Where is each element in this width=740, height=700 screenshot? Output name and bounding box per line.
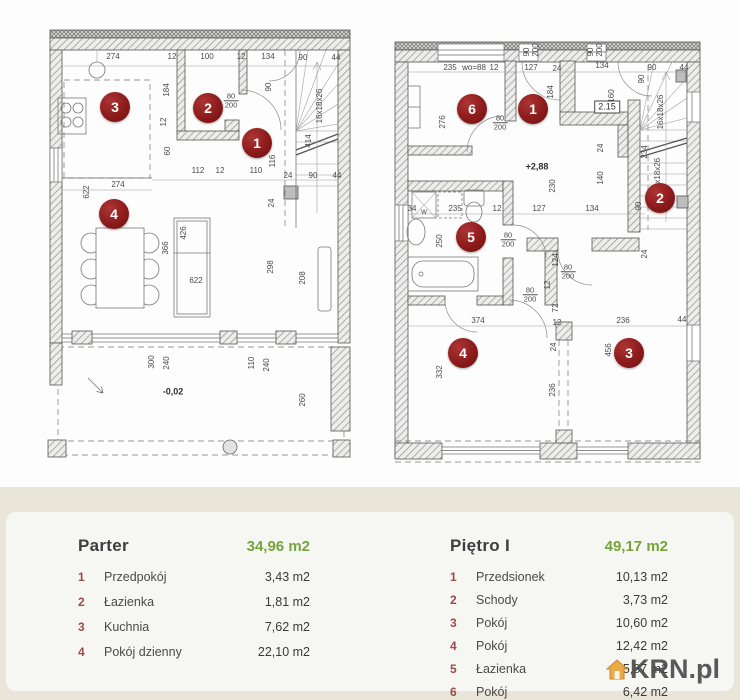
dimension-label: 366 bbox=[162, 241, 170, 254]
dimension-label: 34 bbox=[408, 205, 417, 213]
dimension-label: 24 bbox=[553, 65, 562, 73]
dimension-label: 80200 bbox=[523, 286, 538, 304]
dimension-label: 200 bbox=[532, 43, 540, 56]
room-number: 6 bbox=[450, 685, 476, 699]
legend-parter: Parter 34,96 m2 1Przedpokój3,43 m22Łazie… bbox=[78, 536, 310, 670]
room-badge-3: 3 bbox=[614, 338, 644, 368]
dimension-label: 12 bbox=[168, 53, 177, 61]
dimension-label: 90 bbox=[265, 83, 273, 92]
legend-parter-rows: 1Przedpokój3,43 m22Łazienka1,81 m23Kuchn… bbox=[78, 570, 310, 659]
room-number: 2 bbox=[450, 593, 476, 607]
legend-pietro-total: 49,17 m2 bbox=[605, 538, 668, 555]
room-badge-1: 1 bbox=[242, 128, 272, 158]
dimension-label: 24 bbox=[550, 343, 558, 352]
legend-row: 1Przedsionek10,13 m2 bbox=[450, 570, 668, 584]
dimension-label: 230 bbox=[549, 179, 557, 192]
dimension-label: 240 bbox=[263, 358, 271, 371]
house-icon bbox=[605, 658, 629, 682]
dimension-label: 60 bbox=[164, 147, 172, 156]
dimension-label: 112 bbox=[192, 167, 205, 175]
room-area: 3,43 m2 bbox=[265, 570, 310, 584]
dimension-label: 298 bbox=[267, 260, 275, 273]
dimension-label: 134 bbox=[261, 53, 274, 61]
room-number: 1 bbox=[78, 570, 104, 584]
room-name: Pokój bbox=[476, 685, 623, 699]
room-area: 10,60 m2 bbox=[616, 616, 668, 630]
legend-parter-header: Parter 34,96 m2 bbox=[78, 536, 310, 556]
room-badge-5: 5 bbox=[456, 222, 486, 252]
dimension-label: 44 bbox=[680, 64, 689, 72]
dimension-label: 90 bbox=[523, 48, 531, 57]
dimension-label: 236 bbox=[616, 317, 629, 325]
room-badge-6: 6 bbox=[457, 94, 487, 124]
legend-pietro-title: Piętro I bbox=[450, 536, 510, 556]
dimension-label: 240 bbox=[163, 356, 171, 369]
legend-row: 6Pokój6,42 m2 bbox=[450, 685, 668, 699]
dimension-label: 127 bbox=[524, 64, 537, 72]
room-badge-1: 1 bbox=[518, 94, 548, 124]
room-name: Pokój bbox=[476, 616, 616, 630]
room-name: Schody bbox=[476, 593, 623, 607]
dimension-label: 24 bbox=[268, 199, 276, 208]
dimension-label: 44 bbox=[678, 316, 687, 324]
legend-row: 4Pokój dzienny22,10 m2 bbox=[78, 645, 310, 659]
room-number: 1 bbox=[450, 570, 476, 584]
dimension-label: 12 bbox=[544, 281, 552, 290]
dimension-label: 80200 bbox=[501, 231, 516, 249]
dimension-label: 72 bbox=[552, 304, 560, 313]
legend-card: Parter 34,96 m2 1Przedpokój3,43 m22Łazie… bbox=[6, 512, 734, 691]
room-name: Pokój bbox=[476, 639, 616, 653]
dimension-label: 274 bbox=[111, 181, 124, 189]
dimension-label: 208 bbox=[299, 271, 307, 284]
dimension-label: 24 bbox=[641, 250, 649, 259]
legend-row: 3Pokój10,60 m2 bbox=[450, 616, 668, 630]
dimension-label: 140 bbox=[597, 171, 605, 184]
dimension-label: 16x18x26 bbox=[316, 89, 324, 124]
room-name: Przedsionek bbox=[476, 570, 616, 584]
level-label: +2,88 bbox=[526, 163, 549, 172]
room-number: 5 bbox=[450, 662, 476, 676]
legend-row: 3Kuchnia7,62 m2 bbox=[78, 620, 310, 634]
room-name: Łazienka bbox=[104, 595, 265, 609]
legend-parter-title: Parter bbox=[78, 536, 129, 556]
dimension-label: w bbox=[421, 208, 427, 216]
krn-watermark-text: KRN.pl bbox=[630, 654, 720, 685]
legend-pietro-header: Piętro I 49,17 m2 bbox=[450, 536, 668, 556]
dimension-label: 12 bbox=[216, 167, 225, 175]
room-badge-2: 2 bbox=[193, 93, 223, 123]
room-area: 6,42 m2 bbox=[623, 685, 668, 699]
dimension-label: 100 bbox=[200, 53, 213, 61]
dimension-label: 124 bbox=[552, 253, 560, 266]
room-name: Pokój dzienny bbox=[104, 645, 258, 659]
dimension-label: 134 bbox=[585, 205, 598, 213]
room-name: Kuchnia bbox=[104, 620, 265, 634]
room-badge-2: 2 bbox=[645, 183, 675, 213]
legend-row: 2Łazienka1,81 m2 bbox=[78, 595, 310, 609]
legend-row: 1Przedpokój3,43 m2 bbox=[78, 570, 310, 584]
dimension-label: 127 bbox=[532, 205, 545, 213]
dimension-label: 332 bbox=[436, 365, 444, 378]
level-label: -0,02 bbox=[163, 388, 184, 397]
floorplan-listing-image: .wall{fill:url(#pHatch);stroke:#555;stro… bbox=[0, 0, 740, 700]
dimension-label: 80200 bbox=[493, 114, 508, 132]
dimension-label: 134 bbox=[595, 62, 608, 70]
dimension-label: 414 bbox=[305, 134, 313, 147]
dimension-label: 12 bbox=[490, 64, 499, 72]
dimension-label: 274 bbox=[106, 53, 119, 61]
room-name: Łazienka bbox=[476, 662, 623, 676]
dimension-label: 236 bbox=[549, 383, 557, 396]
dimension-label: 24 bbox=[597, 144, 605, 153]
dimension-label: 200 bbox=[596, 43, 604, 56]
room-badge-4: 4 bbox=[448, 338, 478, 368]
dimension-label: 80200 bbox=[561, 263, 576, 281]
dimension-label: 184 bbox=[547, 85, 555, 98]
dimension-label: 235 bbox=[448, 205, 461, 213]
dimension-label: 80200 bbox=[224, 92, 239, 110]
plan-annotations-layer: 274121001213490441849080200126011641416x… bbox=[0, 0, 740, 487]
room-area: 3,73 m2 bbox=[623, 593, 668, 607]
room-badge-4: 4 bbox=[99, 199, 129, 229]
room-name: Przedpokój bbox=[104, 570, 265, 584]
legend-parter-total: 34,96 m2 bbox=[247, 538, 310, 555]
dimension-label: 90 bbox=[638, 75, 646, 84]
legend-section: Parter 34,96 m2 1Przedpokój3,43 m22Łazie… bbox=[0, 487, 740, 700]
room-number: 4 bbox=[78, 645, 104, 659]
dimension-label: 622 bbox=[83, 185, 91, 198]
dimension-label: 24 bbox=[284, 172, 293, 180]
krn-watermark: KRN.pl bbox=[605, 654, 720, 685]
dimension-label: 374 bbox=[471, 317, 484, 325]
dimension-label: 426 bbox=[180, 226, 188, 239]
room-area: 22,10 m2 bbox=[258, 645, 310, 659]
room-number: 2 bbox=[78, 595, 104, 609]
dimension-label: 90 bbox=[648, 64, 657, 72]
dimension-label: 44 bbox=[332, 54, 341, 62]
dimension-label: 12 bbox=[237, 53, 246, 61]
dimension-label: 250 bbox=[436, 234, 444, 247]
dimension-label: 622 bbox=[189, 277, 202, 285]
floorplans-section: .wall{fill:url(#pHatch);stroke:#555;stro… bbox=[0, 0, 740, 487]
dimension-label: 260 bbox=[299, 393, 307, 406]
dimension-label: 110 bbox=[250, 167, 263, 175]
room-badge-3: 3 bbox=[100, 92, 130, 122]
room-number: 4 bbox=[450, 639, 476, 653]
dimension-label: 12 bbox=[493, 205, 502, 213]
dimension-label: 184 bbox=[163, 83, 171, 96]
dimension-label: 90 bbox=[299, 54, 308, 62]
dimension-label: 12 bbox=[553, 319, 562, 327]
dimension-label: 110 bbox=[248, 357, 256, 370]
dimension-label: 276 bbox=[439, 115, 447, 128]
room-area: 10,13 m2 bbox=[616, 570, 668, 584]
room-area: 7,62 m2 bbox=[265, 620, 310, 634]
dimension-label: 456 bbox=[605, 343, 613, 356]
dimension-label: 90 bbox=[635, 202, 643, 211]
dimension-label: 300 bbox=[148, 355, 156, 368]
dimension-label: wo=88 bbox=[462, 64, 486, 72]
legend-row: 4Pokój12,42 m2 bbox=[450, 639, 668, 653]
dimension-label: 234 bbox=[641, 145, 649, 158]
room-area: 12,42 m2 bbox=[616, 639, 668, 653]
dimension-label: 16x18x26 bbox=[657, 95, 665, 130]
dimension-label: 44 bbox=[333, 172, 342, 180]
dimension-label: 90 bbox=[587, 48, 595, 57]
dimension-label: 235 bbox=[443, 64, 456, 72]
room-number: 3 bbox=[78, 620, 104, 634]
dimension-label: 116 bbox=[269, 155, 277, 168]
dimension-label: 90 bbox=[309, 172, 318, 180]
room-number: 3 bbox=[450, 616, 476, 630]
dimension-label: 12 bbox=[160, 118, 168, 127]
room-area: 1,81 m2 bbox=[265, 595, 310, 609]
legend-row: 2Schody3,73 m2 bbox=[450, 593, 668, 607]
dimension-label: 2.15 bbox=[594, 101, 620, 114]
